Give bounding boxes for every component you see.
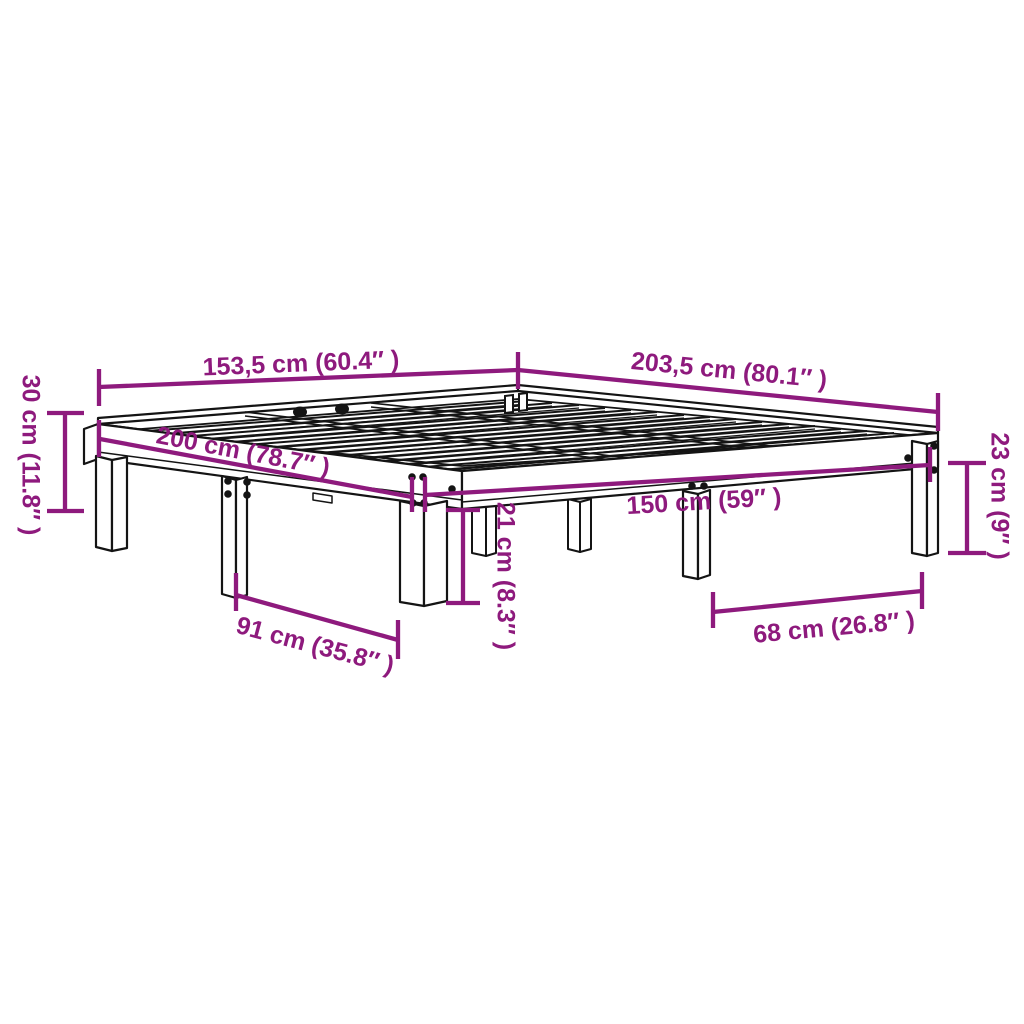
dimension-label-leg-clearance: 21 cm (8.3″ ) [493,502,518,650]
dimension-label-side-rail-height: 23 cm (9″ ) [987,432,1012,559]
dimension-label-frame-height: 30 cm (11.8″ ) [18,375,43,536]
diagram-canvas: 153,5 cm (60.4″ ) 203,5 cm (80.1″ ) 30 c… [0,0,1024,1024]
